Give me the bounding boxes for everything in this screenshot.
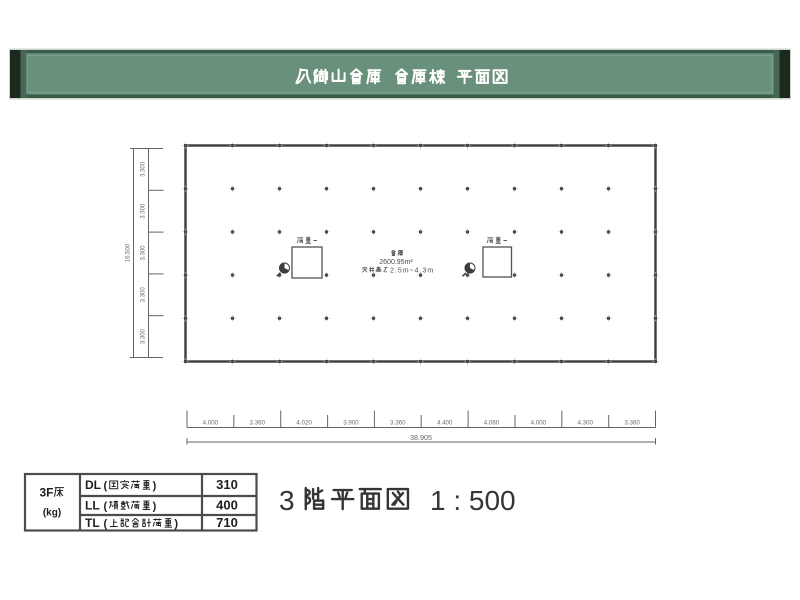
- svg-text:310: 310: [216, 477, 238, 492]
- svg-text:TL: TL: [85, 516, 100, 530]
- svg-text:(: (: [104, 518, 108, 530]
- svg-text:(: (: [104, 480, 108, 492]
- svg-text:3.360: 3.360: [250, 420, 266, 427]
- svg-text:3.300: 3.300: [141, 245, 147, 261]
- svg-text:4.400: 4.400: [437, 420, 453, 427]
- svg-text:3.300: 3.300: [141, 203, 147, 219]
- svg-text:3.300: 3.300: [141, 328, 147, 344]
- svg-text:(: (: [104, 501, 108, 513]
- svg-text:2600.95m²: 2600.95m²: [379, 259, 413, 266]
- svg-text:(kg): (kg): [43, 508, 61, 519]
- svg-text:2.5m~4.3m: 2.5m~4.3m: [390, 267, 434, 274]
- svg-text:DL: DL: [85, 478, 101, 492]
- svg-text:400: 400: [216, 498, 238, 513]
- svg-text:4.020: 4.020: [296, 420, 312, 427]
- svg-text:4.060: 4.060: [484, 420, 500, 427]
- svg-text:38.905: 38.905: [410, 433, 432, 442]
- svg-text:4.300: 4.300: [577, 420, 593, 427]
- svg-text:LL: LL: [85, 499, 100, 513]
- svg-text:3F: 3F: [40, 486, 54, 500]
- svg-text:3.300: 3.300: [141, 287, 147, 303]
- svg-text:): ): [153, 480, 157, 492]
- svg-text:1 : 500: 1 : 500: [430, 485, 516, 516]
- svg-text:3.360: 3.360: [390, 420, 406, 427]
- svg-text:4.000: 4.000: [203, 420, 219, 427]
- svg-text:): ): [174, 518, 178, 530]
- svg-text:710: 710: [216, 515, 238, 530]
- svg-text:3.300: 3.300: [141, 161, 147, 177]
- svg-text:16.500: 16.500: [126, 243, 132, 262]
- svg-text:3.360: 3.360: [624, 420, 640, 427]
- svg-text:3.900: 3.900: [343, 420, 359, 427]
- svg-text:4.000: 4.000: [531, 420, 547, 427]
- svg-text:): ): [153, 501, 157, 513]
- svg-text:3: 3: [279, 485, 295, 516]
